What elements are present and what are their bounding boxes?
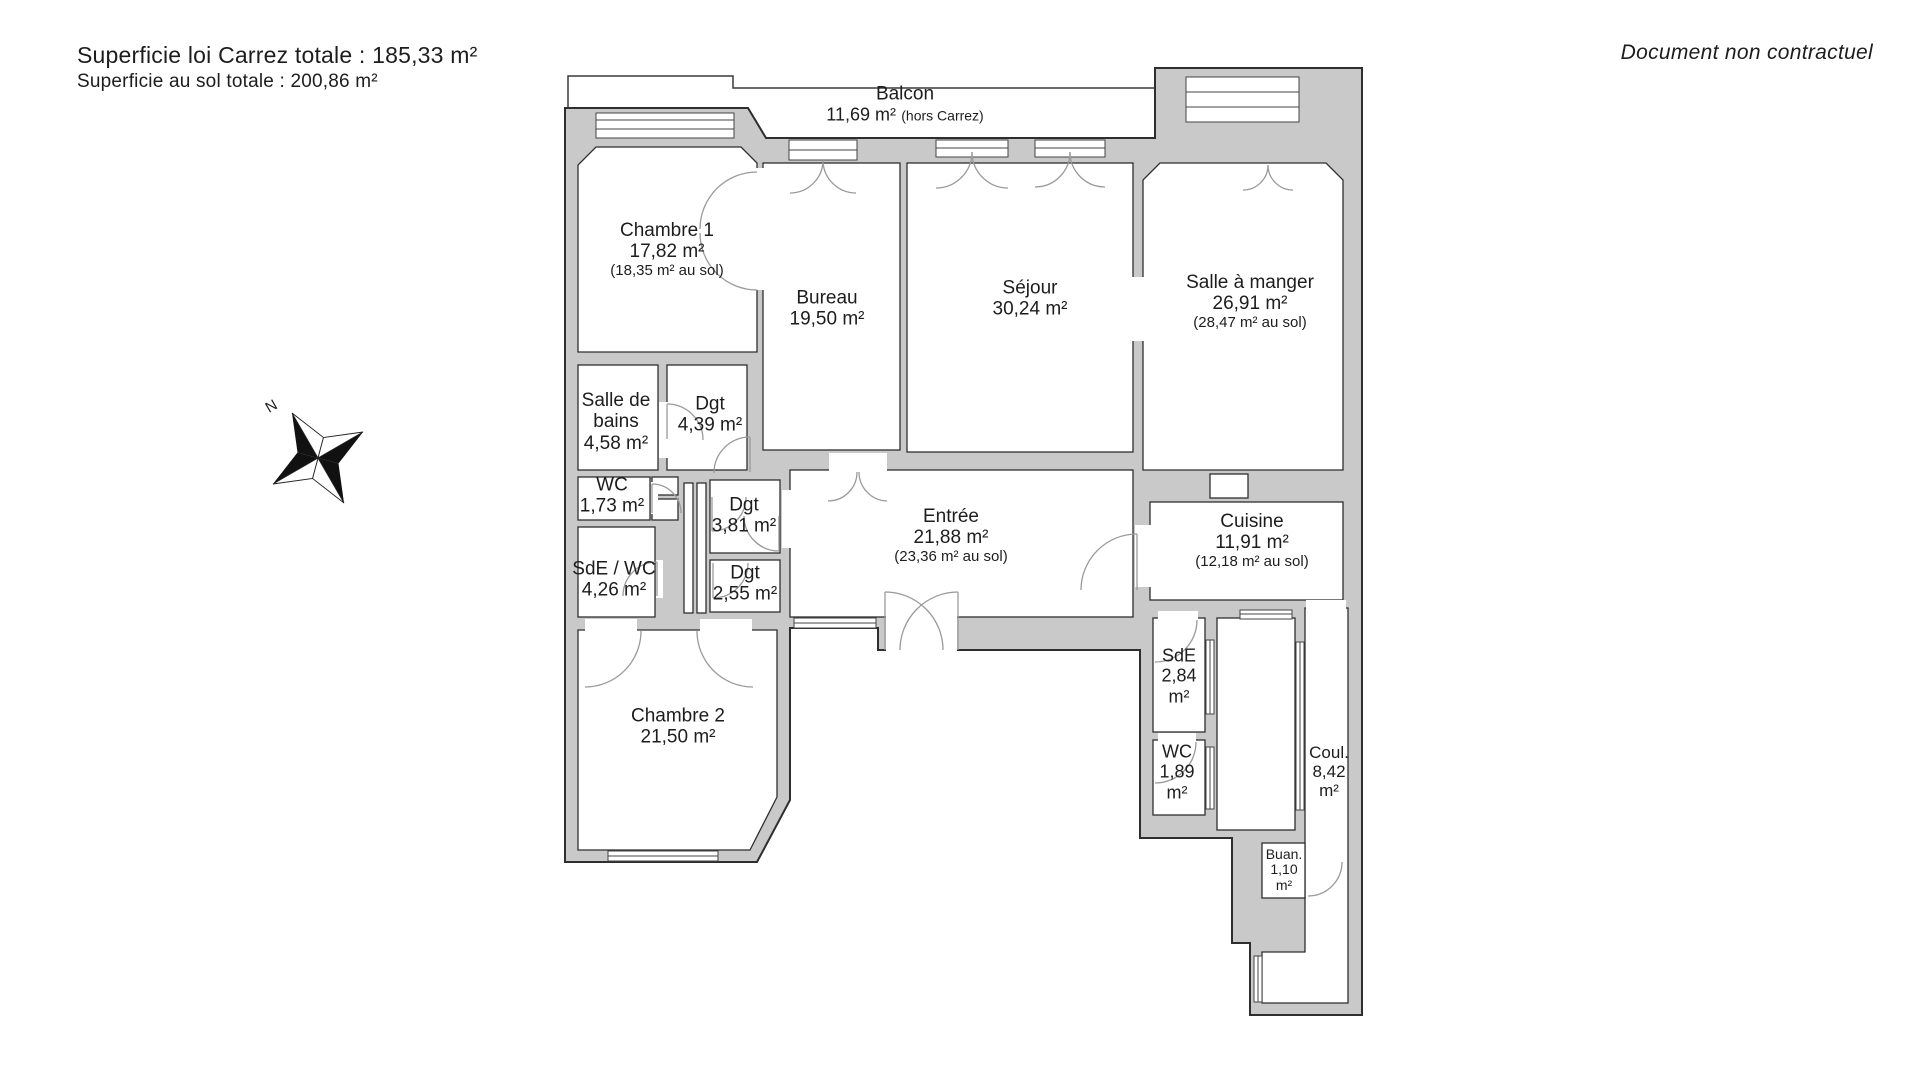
room-label-sejour: Séjour 30,24 m²: [993, 278, 1068, 321]
duct-shaft: [697, 483, 706, 613]
room-label-sde-wc: SdE / WC 4,26 m²: [572, 559, 655, 602]
room-label-dgt-1: Dgt 4,39 m²: [678, 394, 742, 437]
room-label-balcon: Balcon 11,69 m² (hors Carrez): [826, 84, 983, 127]
room-label-bureau: Bureau 19,50 m²: [790, 288, 865, 331]
room-label-sde-2: SdE 2,84 m²: [1156, 646, 1202, 707]
room-label-couloir: Coul. 8,42 m²: [1307, 743, 1351, 801]
room-label-cuisine: Cuisine 11,91 m² (12,18 m² au sol): [1195, 511, 1308, 571]
room-label-entree: Entrée 21,88 m² (23,36 m² au sol): [894, 506, 1007, 566]
room-label-chambre-1: Chambre 1 17,82 m² (18,35 m² au sol): [610, 220, 723, 280]
room-label-dgt-2: Dgt 3,81 m²: [712, 495, 776, 538]
room-label-salle-de-bains: Salle de bains 4,58 m²: [570, 390, 662, 454]
courtyard-shape: [1217, 618, 1295, 830]
room-label-dgt-3: Dgt 2,55 m²: [713, 563, 777, 606]
room-label-wc-1: WC 1,73 m²: [580, 475, 644, 518]
duct-shaft: [684, 483, 693, 613]
room-label-salle-a-manger: Salle à manger 26,91 m² (28,47 m² au sol…: [1186, 272, 1314, 332]
room-label-buanderie: Buan. 1,10 m²: [1264, 847, 1304, 893]
room-label-wc-2: WC 1,89 m²: [1154, 742, 1200, 803]
room-label-chambre-2: Chambre 2 21,50 m²: [631, 706, 725, 749]
floor-plan-page: Superficie loi Carrez totale : 185,33 m²…: [0, 0, 1920, 1080]
duct-box: [1210, 474, 1248, 498]
